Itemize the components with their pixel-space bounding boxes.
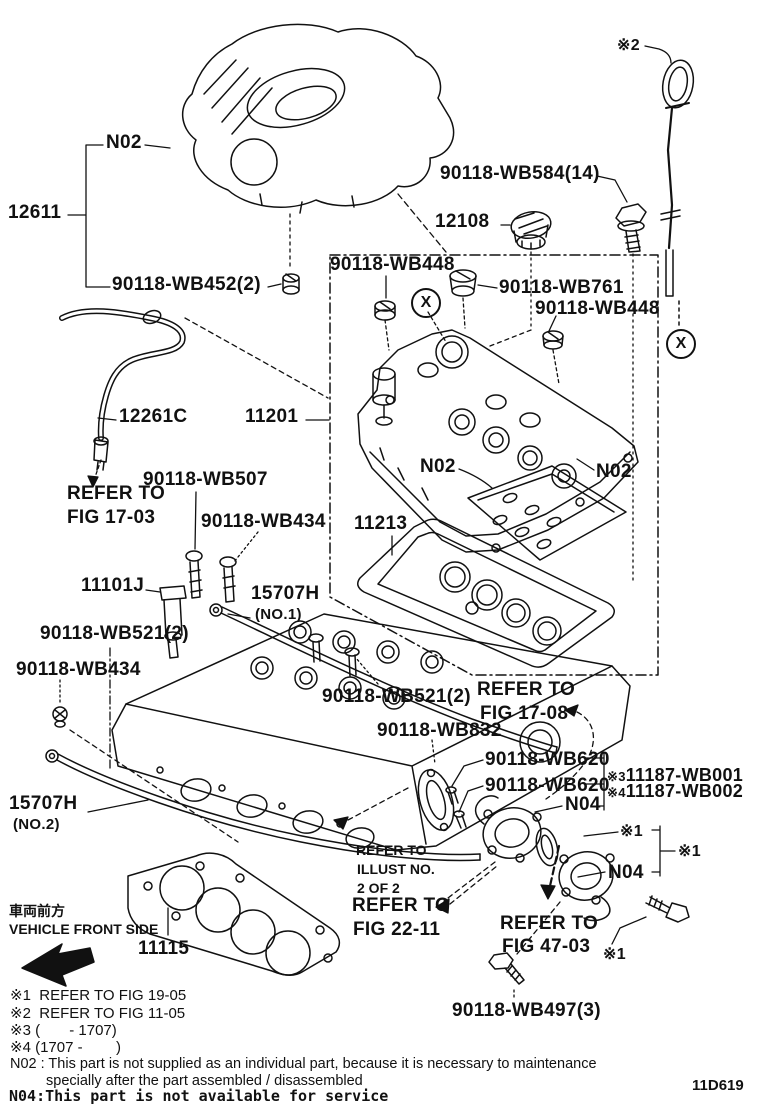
ref-fig1703-line2: FIG 17-03: [67, 508, 155, 527]
diagram-line-art: [0, 0, 760, 1112]
callout-wb452: 90118-WB452(2): [112, 275, 261, 294]
vehicle-front-arrow: [22, 944, 94, 986]
ref4-mark: ※4: [607, 785, 626, 800]
ref-fig1703-line1: REFER TO: [67, 484, 165, 503]
callout-ref1-a: ※1: [620, 824, 643, 840]
callout-11201: 11201: [245, 407, 298, 426]
note-n04: N04:This part is not available for servi…: [9, 1089, 388, 1104]
callout-wb620-b: 90118-WB620: [485, 776, 610, 795]
callout-wb521-b: 90118-WB521(2): [322, 687, 471, 706]
callout-n02-baffle-left: N02: [420, 457, 456, 476]
drawing-code: 11D619: [692, 1078, 744, 1093]
callout-15707h-2-no: (NO.2): [13, 817, 60, 832]
ref-illust-line2: ILLUST NO.: [357, 862, 435, 876]
callout-wb448-a: 90118-WB448: [330, 255, 455, 274]
callout-15707h-1-no: (NO.1): [255, 607, 302, 622]
callout-n02-cover: N02: [106, 133, 142, 152]
callout-wb497: 90118-WB497(3): [452, 1001, 601, 1020]
ref-illust-line3: 2 OF 2: [357, 881, 400, 895]
vehicle-front-jp: 車両前方: [9, 904, 65, 918]
hose-drawing: [62, 308, 183, 470]
callout-ref1-c: ※1: [603, 947, 626, 963]
note-n02-line1: N02 : This part is not supplied as an in…: [10, 1057, 597, 1072]
callout-wb761: 90118-WB761: [499, 278, 624, 297]
footnote-3: ※3 ( - 1707): [10, 1023, 117, 1038]
plate-wb832-drawing: [412, 766, 460, 834]
footnote-4: ※4 (1707 - ): [10, 1040, 121, 1055]
callout-ref1-b: ※1: [678, 844, 701, 860]
ref-fig1708-line2: FIG 17-08: [480, 704, 568, 723]
head-opt4-number: 11187-WB002: [626, 781, 743, 801]
callout-11213: 11213: [354, 514, 407, 533]
vehicle-front-en: VEHICLE FRONT SIDE: [9, 922, 158, 936]
callout-12611: 12611: [8, 203, 61, 222]
callout-wb584: 90118-WB584(14): [440, 164, 600, 183]
dipstick-drawing: [659, 58, 697, 326]
callout-wb521-a: 90118-WB521(2): [40, 624, 189, 643]
ref-fig4703-line2: FIG 47-03: [502, 937, 590, 956]
callout-n04-outlet: N04: [608, 863, 644, 882]
callout-12261c: 12261C: [119, 407, 187, 426]
x-symbol-right: X: [666, 329, 696, 359]
callout-n04-inlet: N04: [565, 795, 601, 814]
ref-fig2211-line2: FIG 22-11: [353, 920, 440, 939]
callout-15707h-1: 15707H: [251, 584, 319, 603]
x-symbol-left: X: [411, 288, 441, 318]
callout-wb620-a: 90118-WB620: [485, 750, 610, 769]
footnote-1: ※1 REFER TO FIG 19-05: [10, 988, 186, 1003]
callout-11115: 11115: [138, 939, 189, 958]
cylinder-head-drawing: [112, 614, 630, 850]
callout-wb448-b: 90118-WB448: [535, 299, 660, 318]
callout-ref2-mark: ※2: [617, 38, 640, 54]
callout-wb434-b: 90118-WB434: [16, 660, 141, 679]
callout-head-opt4: ※411187-WB002: [607, 782, 743, 800]
callout-15707h-2: 15707H: [9, 794, 77, 813]
ref-fig2211-line1: REFER TO: [352, 896, 450, 915]
ref-fig1708-line1: REFER TO: [477, 680, 575, 699]
callout-wb434-a: 90118-WB434: [201, 512, 326, 531]
ref-illust-line1: REFER TO: [356, 843, 427, 857]
callout-12108: 12108: [435, 212, 489, 231]
engine-cover-drawing: [183, 24, 454, 213]
callout-n02-baffle-right: N02: [596, 462, 632, 481]
callout-11101j: 11101J: [81, 576, 144, 595]
oil-cap-drawing: [509, 209, 553, 249]
bolt-wb584-drawing: [616, 204, 646, 252]
grommet-wb452-drawing: [283, 274, 299, 294]
parts-diagram-page: N02 12611 90118-WB452(2) 90118-WB584(14)…: [0, 0, 760, 1112]
ref-fig4703-line1: REFER TO: [500, 914, 598, 933]
footnote-2: ※2 REFER TO FIG 11-05: [10, 1006, 185, 1021]
